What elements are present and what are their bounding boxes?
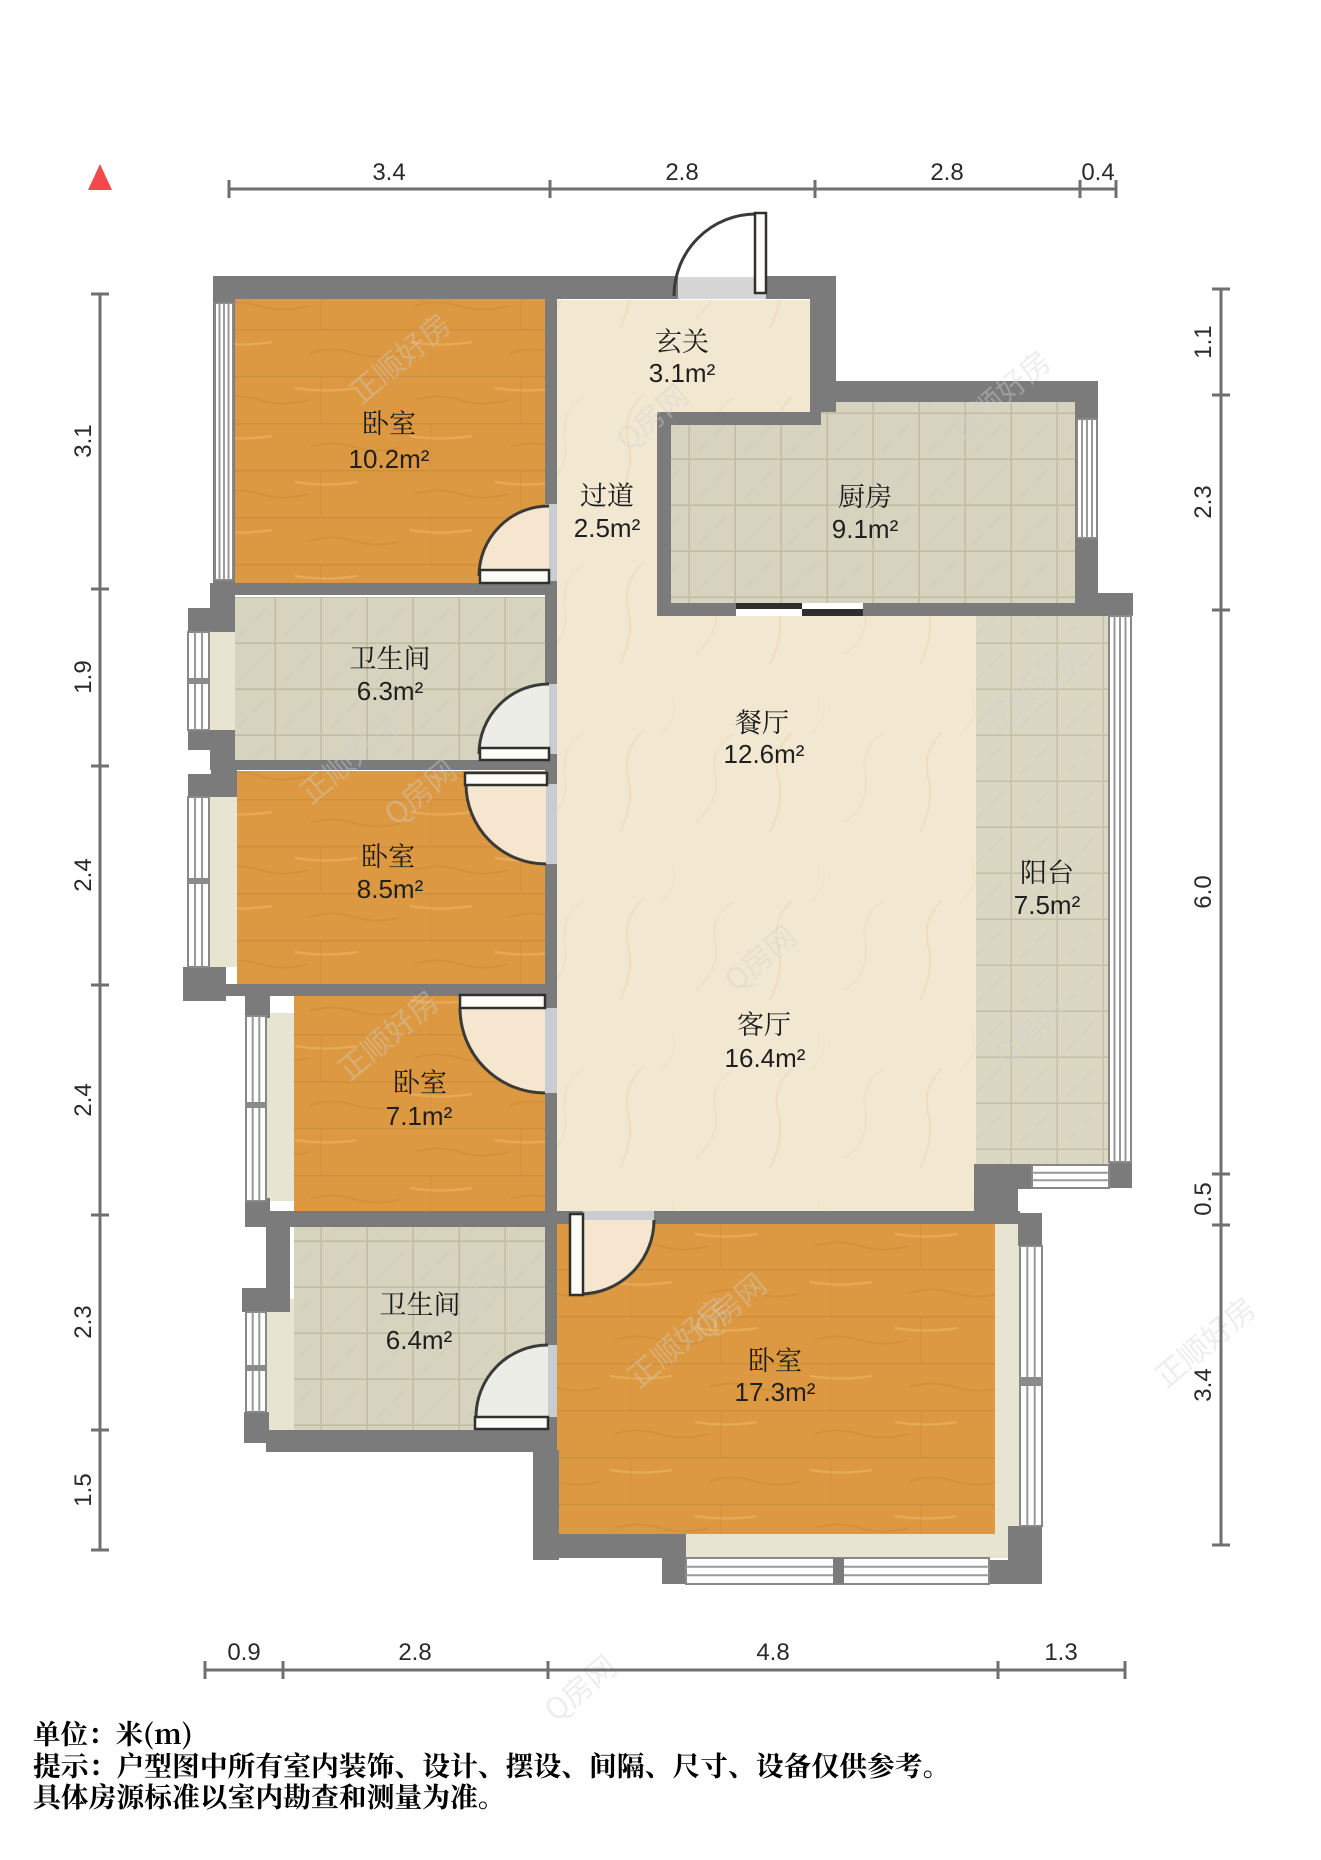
svg-text:0.5: 0.5 bbox=[1190, 1182, 1217, 1215]
svg-text:7.5m²: 7.5m² bbox=[1014, 890, 1081, 920]
svg-text:6.0: 6.0 bbox=[1190, 875, 1217, 908]
svg-text:2.8: 2.8 bbox=[398, 1639, 431, 1666]
svg-text:16.4m²: 16.4m² bbox=[725, 1043, 806, 1073]
svg-text:8.5m²: 8.5m² bbox=[357, 874, 424, 904]
svg-text:4.8: 4.8 bbox=[756, 1639, 789, 1666]
svg-text:6.3m²: 6.3m² bbox=[357, 676, 424, 706]
svg-text:10.2m²: 10.2m² bbox=[349, 444, 430, 474]
svg-text:7.1m²: 7.1m² bbox=[386, 1101, 453, 1131]
svg-text:0.4: 0.4 bbox=[1081, 159, 1114, 186]
svg-text:9.1m²: 9.1m² bbox=[832, 514, 899, 544]
svg-text:3.4: 3.4 bbox=[372, 159, 405, 186]
svg-text:1.5: 1.5 bbox=[70, 1473, 97, 1506]
svg-text:3.4: 3.4 bbox=[1190, 1368, 1217, 1401]
svg-text:2.5m²: 2.5m² bbox=[574, 513, 641, 543]
svg-text:12.6m²: 12.6m² bbox=[724, 739, 805, 769]
svg-text:1.3: 1.3 bbox=[1044, 1639, 1077, 1666]
svg-text:1.9: 1.9 bbox=[70, 660, 97, 693]
svg-text:6.4m²: 6.4m² bbox=[386, 1325, 453, 1355]
svg-text:2.3: 2.3 bbox=[70, 1305, 97, 1338]
svg-text:17.3m²: 17.3m² bbox=[735, 1377, 816, 1407]
svg-text:2.4: 2.4 bbox=[70, 858, 97, 891]
svg-text:3.1: 3.1 bbox=[70, 424, 97, 457]
svg-text:2.8: 2.8 bbox=[665, 159, 698, 186]
svg-text:2.4: 2.4 bbox=[70, 1083, 97, 1116]
svg-text:2.8: 2.8 bbox=[930, 159, 963, 186]
svg-text:0.9: 0.9 bbox=[227, 1639, 260, 1666]
svg-text:3.1m²: 3.1m² bbox=[649, 358, 716, 388]
svg-text:1.1: 1.1 bbox=[1190, 325, 1217, 358]
svg-text:2.3: 2.3 bbox=[1190, 485, 1217, 518]
